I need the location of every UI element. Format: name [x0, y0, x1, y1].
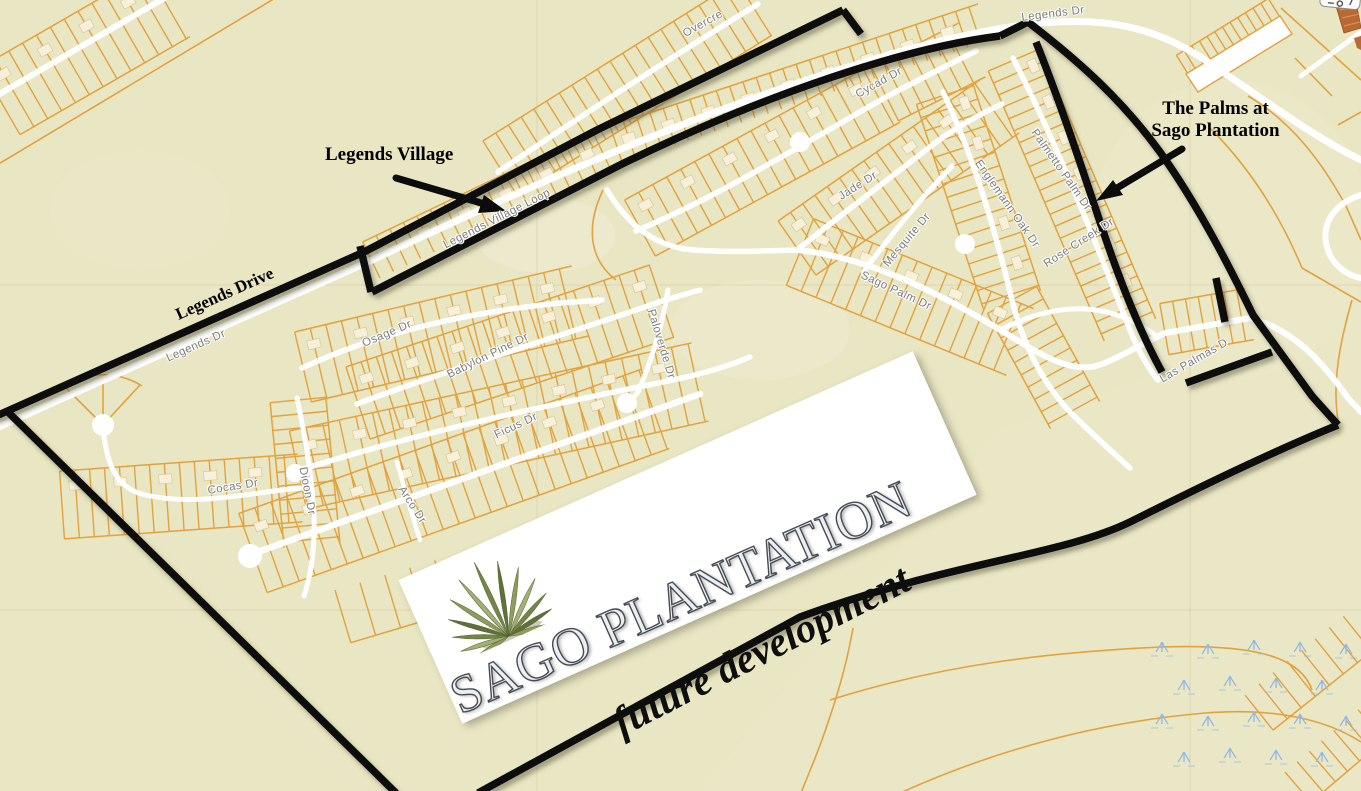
legends-village-label: Legends Village	[325, 144, 453, 166]
map-canvas: Legends DrLegends Village LoopOvercreLeg…	[0, 0, 1361, 791]
palms-label-line2: Sago Plantation	[1151, 120, 1279, 141]
palms-label: The Palms at Sago Plantation	[1118, 98, 1313, 142]
palms-label-line1: The Palms at	[1162, 98, 1269, 119]
